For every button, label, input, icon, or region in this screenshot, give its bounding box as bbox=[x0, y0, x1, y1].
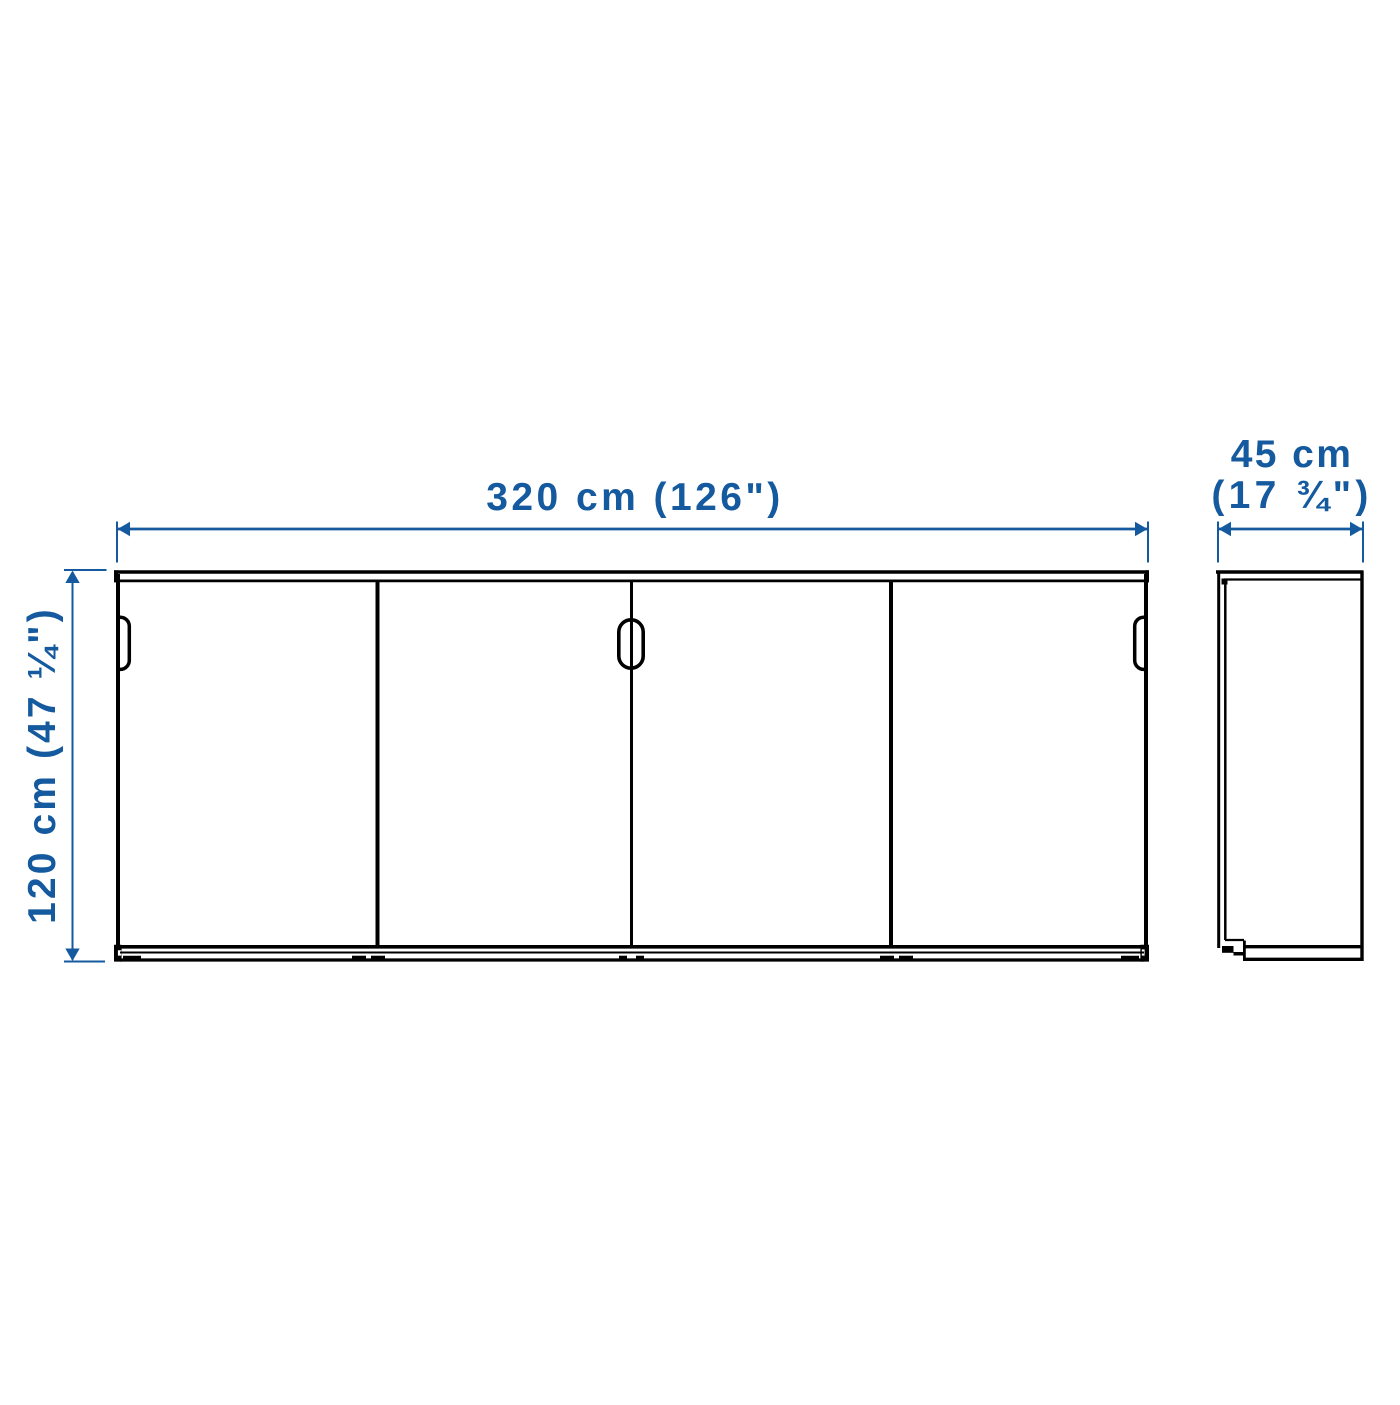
svg-text:45 cm: 45 cm bbox=[1231, 433, 1354, 476]
svg-text:120 cm (47 ¼"): 120 cm (47 ¼") bbox=[21, 606, 64, 924]
svg-text:(17 ¾"): (17 ¾") bbox=[1211, 474, 1372, 517]
svg-text:320 cm (126"): 320 cm (126") bbox=[486, 476, 784, 519]
